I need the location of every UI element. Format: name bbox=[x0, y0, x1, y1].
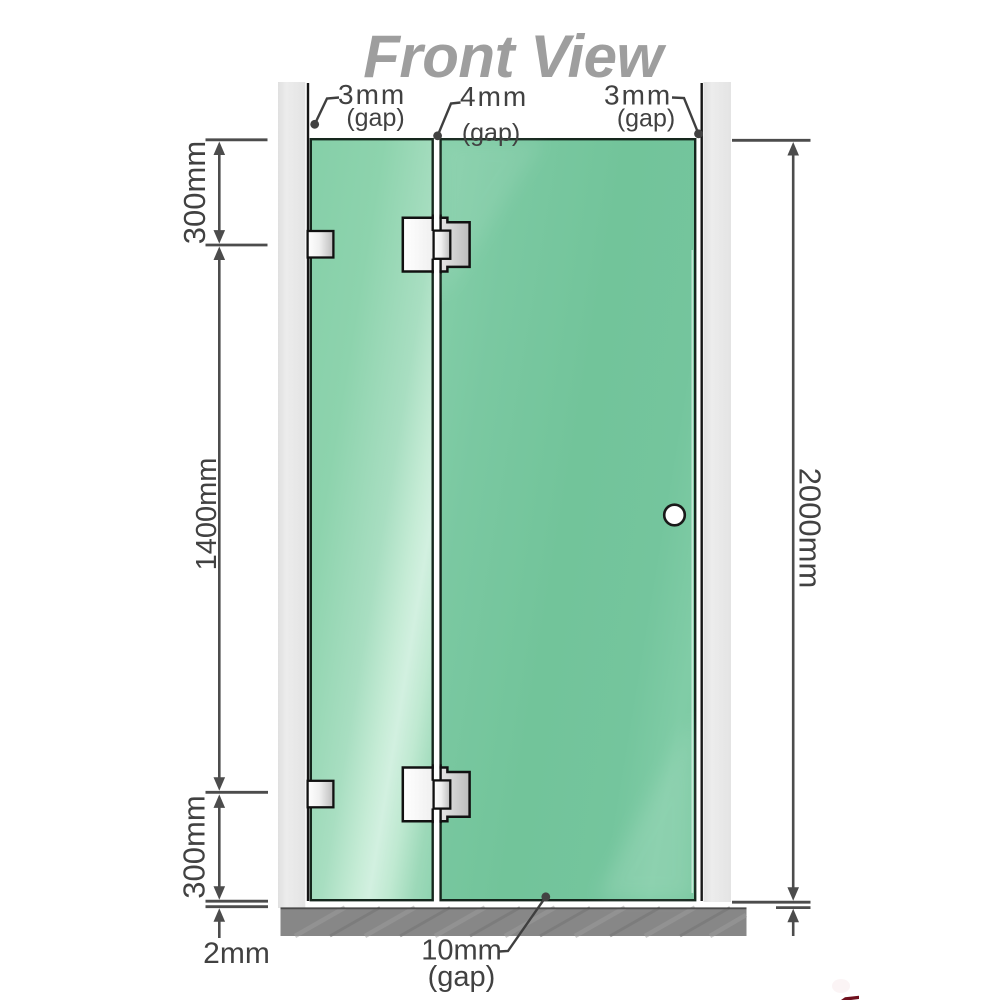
svg-text:4mm: 4mm bbox=[460, 81, 528, 112]
svg-text:1400mm: 1400mm bbox=[191, 458, 223, 571]
svg-text:(gap): (gap) bbox=[346, 104, 404, 132]
svg-text:300mm: 300mm bbox=[177, 795, 212, 898]
svg-text:2mm: 2mm bbox=[203, 937, 270, 970]
svg-text:(gap): (gap) bbox=[617, 105, 675, 133]
svg-text:(gap): (gap) bbox=[428, 961, 496, 993]
svg-text:300mm: 300mm bbox=[177, 141, 212, 244]
svg-text:2000mm: 2000mm bbox=[792, 468, 827, 589]
svg-text:(gap): (gap) bbox=[462, 119, 520, 147]
